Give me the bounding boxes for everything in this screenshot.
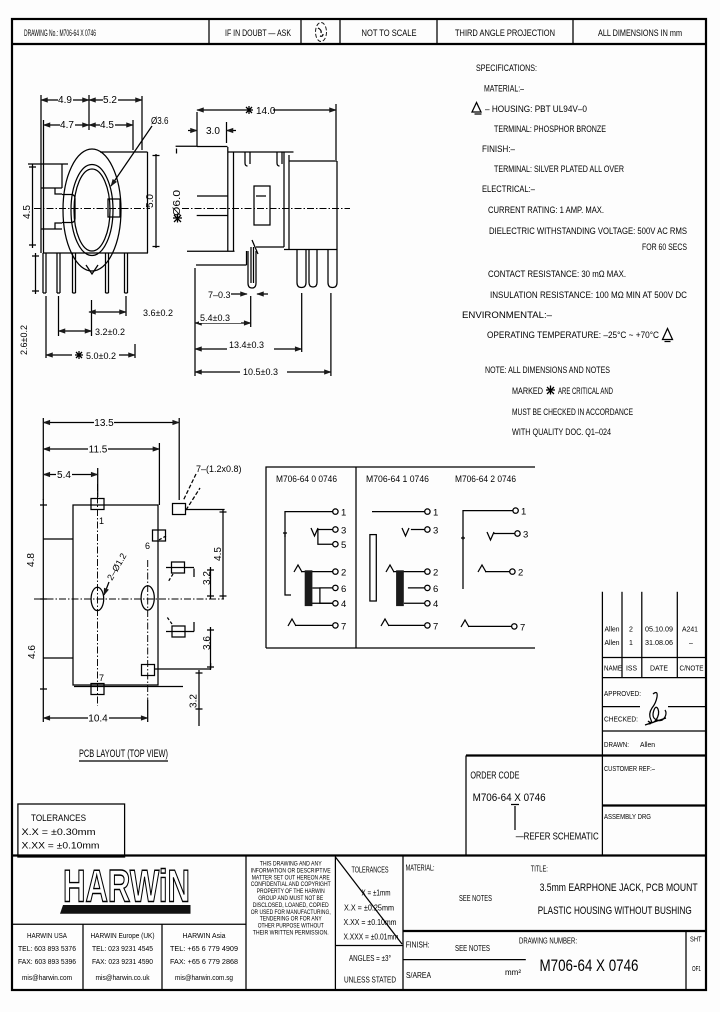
svg-text:IF IN DOUBT — ASK: IF IN DOUBT — ASK — [225, 28, 291, 38]
svg-text:CUSTOMER REF:–: CUSTOMER REF:– — [604, 764, 656, 773]
svg-text:ISS: ISS — [626, 666, 637, 673]
svg-text:A241: A241 — [682, 627, 698, 634]
svg-text:X.XXX = ±0.01mm: X.XXX = ±0.01mm — [344, 932, 399, 942]
svg-text:S/AREA: S/AREA — [406, 971, 432, 980]
svg-text:HARWIN USA: HARWIN USA — [27, 933, 67, 940]
svg-text:TOLERANCES: TOLERANCES — [31, 813, 86, 823]
svg-text:HARWIN Asia: HARWIN Asia — [183, 933, 226, 940]
svg-text:3: 3 — [433, 526, 438, 537]
svg-text:mis@harwin.co.uk: mis@harwin.co.uk — [96, 975, 150, 982]
svg-text:Allen: Allen — [605, 627, 620, 634]
svg-text:MARKED: MARKED — [512, 386, 543, 397]
svg-text:TERMINAL: SILVER PLATED ALL OV: TERMINAL: SILVER PLATED ALL OVER — [494, 164, 624, 175]
svg-text:5.0: 5.0 — [145, 194, 156, 208]
svg-text:X.X = ±0.30mm: X.X = ±0.30mm — [22, 827, 96, 837]
svg-text:4.7: 4.7 — [60, 120, 74, 131]
svg-text:NAME: NAME — [604, 666, 622, 673]
svg-text:7: 7 — [99, 673, 104, 683]
svg-text:10.4: 10.4 — [88, 714, 108, 725]
svg-text:—REFER SCHEMATIC: —REFER SCHEMATIC — [516, 832, 599, 843]
svg-text:TOLERANCES: TOLERANCES — [352, 865, 389, 875]
svg-text:TEL: +65 6 779 4909: TEL: +65 6 779 4909 — [170, 946, 238, 953]
svg-text:ALL DIMENSIONS IN mm: ALL DIMENSIONS IN mm — [598, 28, 682, 38]
svg-text:5.4±0.3: 5.4±0.3 — [200, 313, 230, 323]
svg-text:– HOUSING: PBT UL94V–0: – HOUSING: PBT UL94V–0 — [485, 104, 587, 115]
svg-text:3: 3 — [523, 530, 528, 541]
svg-text:7: 7 — [341, 622, 346, 633]
svg-text:ELECTRICAL:–: ELECTRICAL:– — [482, 184, 536, 195]
svg-text:THIRD ANGLE PROJECTION: THIRD ANGLE PROJECTION — [455, 28, 555, 38]
svg-text:2: 2 — [433, 568, 438, 579]
svg-text:FINISH:: FINISH: — [406, 941, 430, 950]
svg-text:ORDER CODE: ORDER CODE — [470, 771, 519, 782]
svg-text:3.6: 3.6 — [202, 636, 213, 650]
svg-text:6: 6 — [341, 584, 346, 595]
svg-text:WITH QUALITY DOC. Q1–024: WITH QUALITY DOC. Q1–024 — [512, 427, 611, 438]
svg-text:10.5±0.3: 10.5±0.3 — [243, 367, 278, 377]
svg-text:Ø6.0: Ø6.0 — [172, 189, 183, 216]
svg-text:X.X = ±0.25mm: X.X = ±0.25mm — [344, 903, 394, 913]
svg-text:ANGLES = ±3°: ANGLES = ±3° — [349, 953, 391, 963]
svg-text:3.2: 3.2 — [189, 694, 200, 708]
svg-text:4.5: 4.5 — [22, 205, 33, 219]
svg-text:FAX: 603 893 5396: FAX: 603 893 5396 — [18, 959, 76, 966]
svg-text:1: 1 — [629, 640, 633, 647]
svg-text:OPERATING TEMPERATURE: –25°C ~: OPERATING TEMPERATURE: –25°C ~ +70°C — [487, 330, 659, 341]
svg-text:SEE NOTES: SEE NOTES — [459, 894, 492, 903]
svg-text:ARE CRITICAL AND: ARE CRITICAL AND — [558, 386, 613, 397]
svg-text:Allen: Allen — [640, 740, 655, 749]
svg-text:MUST BE CHECKED IN ACCORDANCE: MUST BE CHECKED IN ACCORDANCE — [512, 407, 633, 418]
svg-text:3.0: 3.0 — [206, 126, 220, 137]
svg-text:HARWIN Europe (UK): HARWIN Europe (UK) — [91, 933, 155, 940]
svg-text:PCB LAYOUT (TOP VIEW): PCB LAYOUT (TOP VIEW) — [79, 748, 168, 760]
svg-text:FAX: +65 6 779 2868: FAX: +65 6 779 2868 — [170, 959, 238, 966]
svg-text:4.6: 4.6 — [27, 645, 38, 659]
svg-text:C/NOTE: C/NOTE — [680, 666, 704, 673]
svg-text:X = ±1mm: X = ±1mm — [362, 888, 391, 898]
svg-text:13.5: 13.5 — [94, 418, 114, 429]
svg-text:5: 5 — [341, 540, 346, 551]
svg-text:7–(1.2x0.8): 7–(1.2x0.8) — [196, 464, 242, 474]
svg-text:TEL: 023 9231 4545: TEL: 023 9231 4545 — [92, 946, 153, 953]
svg-text:MATERIAL:–: MATERIAL:– — [484, 84, 525, 95]
svg-text:ASSEMBLY DRG: ASSEMBLY DRG — [604, 812, 651, 821]
svg-text:31.08.06: 31.08.06 — [645, 640, 673, 647]
svg-text:3.5mm EARPHONE JACK, PCB MOUNT: 3.5mm EARPHONE JACK, PCB MOUNT — [540, 882, 698, 894]
svg-text:FINISH:–: FINISH:– — [482, 144, 516, 155]
svg-text:4.5: 4.5 — [213, 547, 224, 561]
svg-text:M706-64 X 0746: M706-64 X 0746 — [540, 956, 639, 975]
svg-text:TEL: 603 893 5376: TEL: 603 893 5376 — [18, 946, 76, 953]
svg-text:FAX: 023 9231 4590: FAX: 023 9231 4590 — [92, 959, 153, 966]
svg-text:1: 1 — [341, 508, 346, 519]
svg-text:1: 1 — [521, 507, 526, 518]
svg-text:SEE NOTES: SEE NOTES — [455, 944, 490, 953]
svg-text:mm²: mm² — [505, 968, 521, 977]
svg-text:mis@harwin.com: mis@harwin.com — [22, 975, 72, 982]
svg-text:7: 7 — [520, 623, 525, 634]
svg-text:PLASTIC HOUSING WITHOUT BUSHIN: PLASTIC HOUSING WITHOUT BUSHING — [538, 905, 692, 917]
svg-text:HARWiN: HARWiN — [63, 861, 190, 912]
svg-text:X.XX = ±0.10mm: X.XX = ±0.10mm — [22, 841, 100, 851]
svg-text:1: 1 — [433, 508, 438, 519]
svg-text:SPECIFICATIONS:: SPECIFICATIONS: — [476, 63, 537, 74]
svg-text:DRAWING No.: M706-64 X 0746: DRAWING No.: M706-64 X 0746 — [24, 28, 96, 38]
svg-text:OF1: OF1 — [692, 964, 701, 973]
svg-text:2: 2 — [518, 568, 523, 579]
svg-text:6: 6 — [145, 541, 150, 551]
svg-text:13.4±0.3: 13.4±0.3 — [229, 340, 264, 350]
svg-text:CONTACT RESISTANCE: 30 mΩ MAX.: CONTACT RESISTANCE: 30 mΩ MAX. — [488, 269, 626, 280]
svg-text:7–0.3: 7–0.3 — [208, 290, 231, 300]
svg-text:APPROVED:: APPROVED: — [604, 689, 641, 698]
svg-text:CURRENT RATING: 1 AMP. MAX.: CURRENT RATING: 1 AMP. MAX. — [488, 205, 604, 216]
svg-text:INSULATION RESISTANCE: 100 MΩ: INSULATION RESISTANCE: 100 MΩ MIN AT 500… — [490, 290, 687, 301]
svg-text:DRAWING NUMBER:: DRAWING NUMBER: — [519, 937, 577, 946]
svg-text:1: 1 — [99, 516, 104, 526]
svg-text:3.2: 3.2 — [202, 571, 213, 585]
svg-text:Ø3.6: Ø3.6 — [151, 116, 169, 127]
svg-text:DATE: DATE — [650, 666, 668, 673]
svg-text:M706-64 X 0746: M706-64 X 0746 — [473, 792, 546, 804]
svg-text:NOT TO SCALE: NOT TO SCALE — [362, 28, 417, 38]
svg-text:M706-64 0 0746: M706-64 0 0746 — [276, 474, 337, 484]
svg-text:TITLE:: TITLE: — [531, 865, 548, 874]
svg-text:3.6±0.2: 3.6±0.2 — [143, 308, 173, 318]
svg-text:TERMINAL: PHOSPHOR BRONZE: TERMINAL: PHOSPHOR BRONZE — [494, 124, 606, 135]
svg-text:M706-64 1 0746: M706-64 1 0746 — [366, 474, 429, 484]
svg-text:4: 4 — [433, 599, 438, 610]
svg-text:NOTE: ALL DIMENSIONS AND NOTES: NOTE: ALL DIMENSIONS AND NOTES — [485, 365, 610, 376]
svg-text:MATERIAL:: MATERIAL: — [406, 864, 435, 873]
svg-text:2: 2 — [629, 627, 633, 634]
svg-text:6: 6 — [433, 584, 438, 595]
svg-text:4: 4 — [341, 599, 346, 610]
svg-text:DRAWN:: DRAWN: — [604, 740, 629, 749]
svg-text:M706-64 2 0746: M706-64 2 0746 — [455, 474, 516, 484]
svg-text:5.2: 5.2 — [103, 95, 117, 106]
svg-text:Allen: Allen — [605, 640, 620, 647]
svg-text:UNLESS STATED: UNLESS STATED — [344, 975, 396, 985]
svg-text:4.8: 4.8 — [26, 553, 37, 567]
svg-text:mis@harwin.com.sg: mis@harwin.com.sg — [175, 975, 233, 982]
svg-text:SHT: SHT — [690, 935, 702, 944]
svg-text:5.0±0.2: 5.0±0.2 — [86, 351, 116, 361]
svg-text:DIELECTRIC WITHSTANDING VOLTAG: DIELECTRIC WITHSTANDING VOLTAGE: 500V AC… — [489, 226, 687, 237]
svg-text:4.5: 4.5 — [100, 120, 114, 131]
svg-text:X.XX = ±0.10mm: X.XX = ±0.10mm — [344, 917, 397, 927]
svg-text:3.2±0.2: 3.2±0.2 — [95, 327, 125, 337]
svg-text:4.9: 4.9 — [58, 95, 72, 106]
svg-text:FOR 60 SECS: FOR 60 SECS — [642, 242, 687, 253]
svg-text:CHECKED:: CHECKED: — [604, 715, 638, 724]
svg-text:–: – — [689, 640, 693, 647]
svg-text:THEIR WRITTEN PERMISSION.: THEIR WRITTEN PERMISSION. — [253, 930, 329, 937]
svg-text:05.10.09: 05.10.09 — [645, 627, 673, 634]
svg-text:ENVIRONMENTAL:–: ENVIRONMENTAL:– — [462, 310, 553, 321]
svg-text:5.4: 5.4 — [57, 470, 71, 481]
svg-text:3: 3 — [341, 526, 346, 537]
svg-text:11.5: 11.5 — [89, 445, 108, 456]
svg-text:2.6±0.2: 2.6±0.2 — [19, 325, 29, 355]
svg-text:2: 2 — [341, 568, 346, 579]
svg-text:7: 7 — [433, 622, 438, 633]
svg-text:14.0: 14.0 — [256, 106, 276, 117]
